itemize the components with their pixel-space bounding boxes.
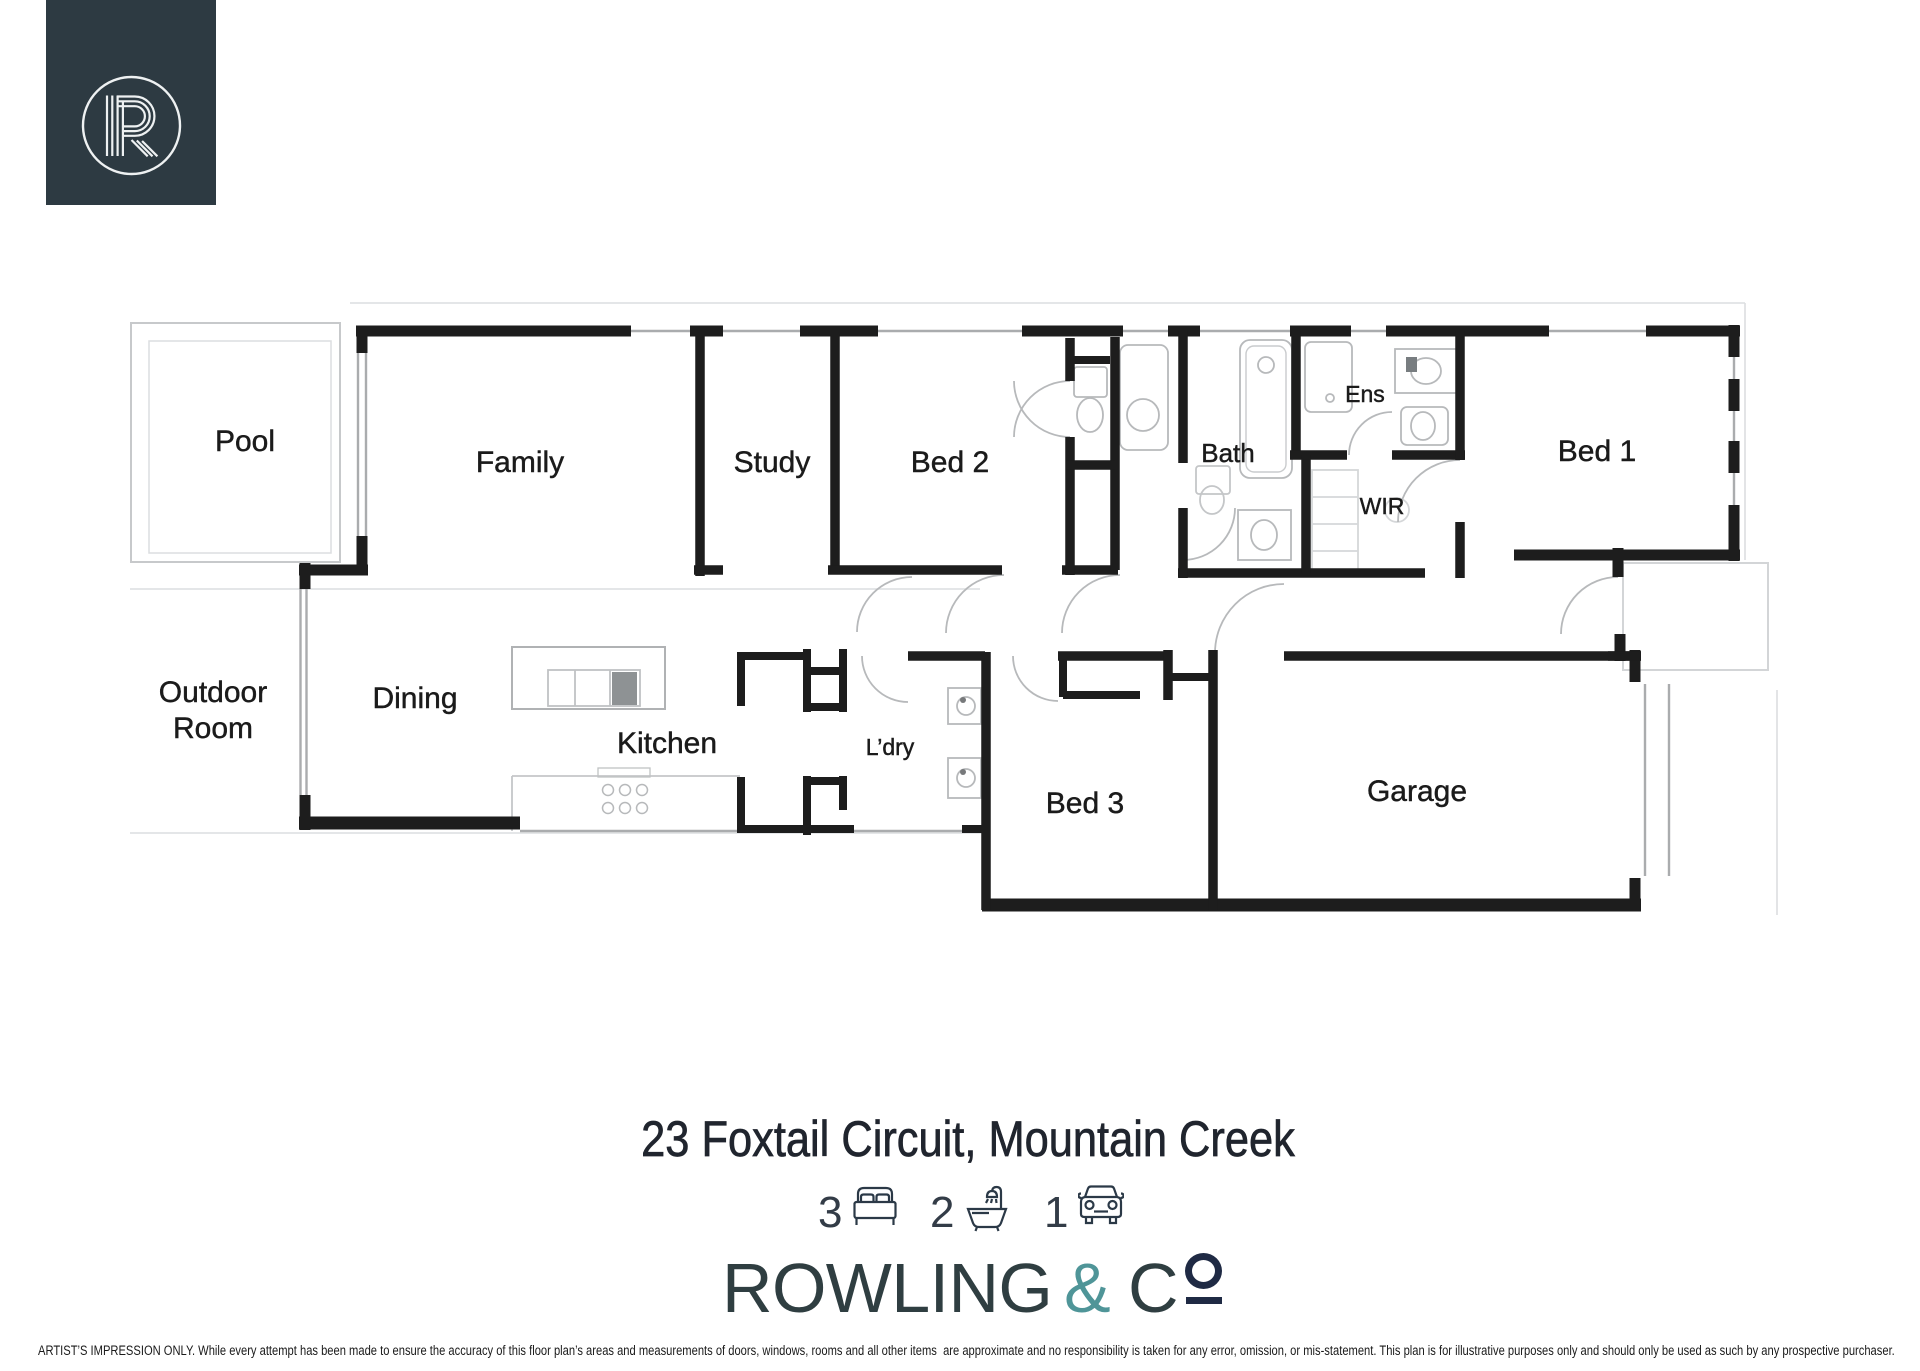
svg-text:Kitchen: Kitchen — [617, 727, 717, 760]
svg-text:Ens: Ens — [1345, 381, 1385, 407]
svg-text:Bed 1: Bed 1 — [1558, 435, 1636, 468]
svg-text:Outdoor: Outdoor — [159, 676, 267, 709]
svg-text:Study: Study — [734, 446, 811, 479]
svg-text:WIR: WIR — [1360, 493, 1405, 519]
svg-text:Pool: Pool — [215, 425, 275, 458]
svg-text:Bath: Bath — [1201, 438, 1255, 468]
svg-text:Family: Family — [476, 446, 564, 479]
svg-text:Garage: Garage — [1367, 775, 1467, 808]
svg-text:Bed 3: Bed 3 — [1046, 787, 1124, 820]
svg-text:Bed 2: Bed 2 — [911, 446, 989, 479]
svg-text:Room: Room — [173, 712, 253, 745]
svg-text:Dining: Dining — [372, 682, 457, 715]
svg-text:L’dry: L’dry — [866, 734, 915, 760]
